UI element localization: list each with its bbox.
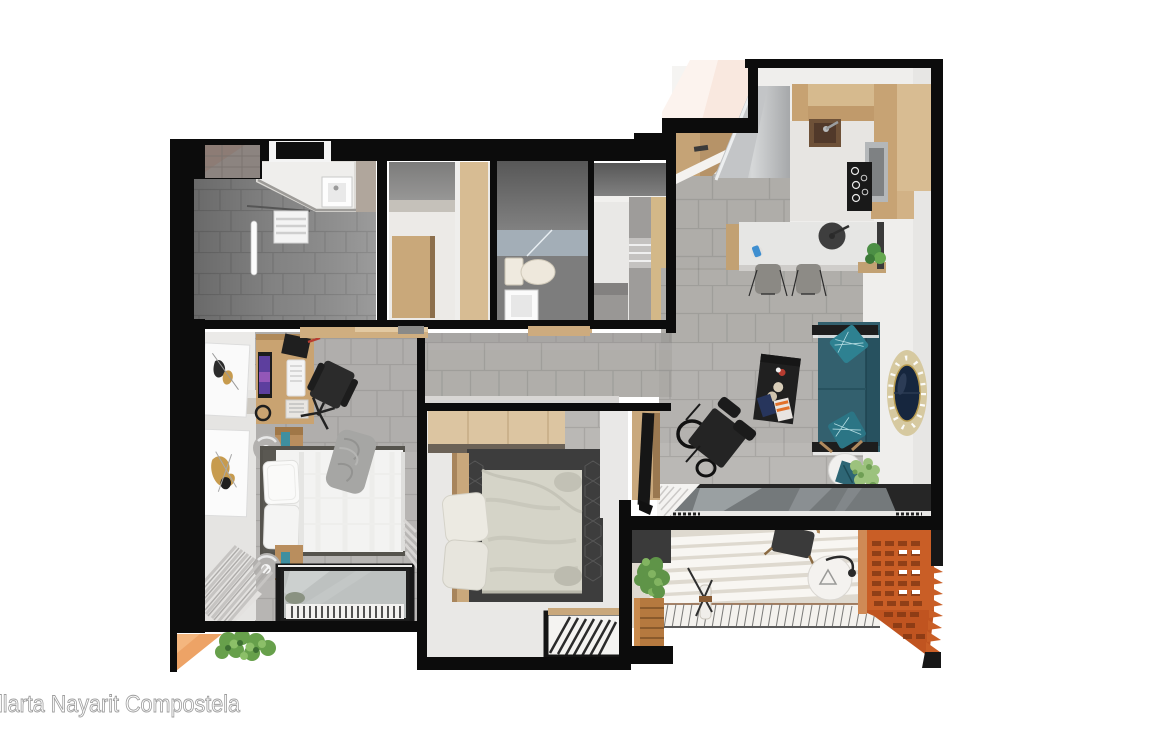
- svg-text:llarta Nayarit Compostela: llarta Nayarit Compostela: [0, 691, 241, 718]
